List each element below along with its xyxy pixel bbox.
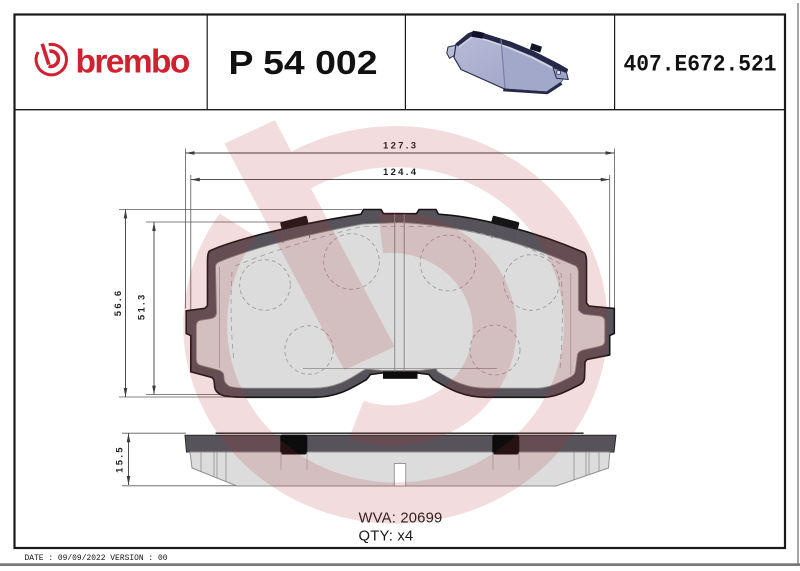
svg-text:P 54 002: P 54 002 [229, 44, 378, 81]
svg-text:51.3: 51.3 [137, 292, 148, 320]
svg-text:56.6: 56.6 [113, 289, 124, 317]
svg-text:15.5: 15.5 [115, 445, 126, 473]
svg-text:brembo: brembo [76, 44, 190, 81]
svg-text:124.4: 124.4 [383, 167, 418, 178]
svg-text:QTY: x4: QTY: x4 [359, 529, 414, 545]
svg-text:DATE : 09/09/2022 VERSION : 00: DATE : 09/09/2022 VERSION : 00 [25, 554, 168, 563]
svg-text:407.E672.521: 407.E672.521 [624, 52, 777, 79]
